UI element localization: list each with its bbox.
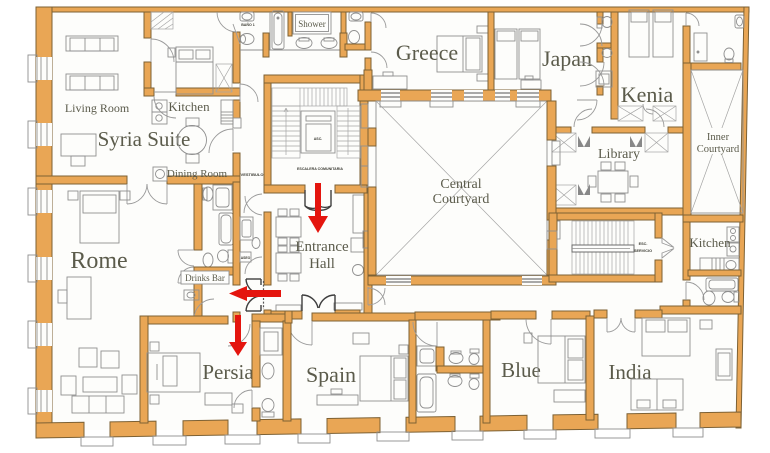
svg-text:Greece: Greece [396,40,458,65]
svg-text:ESCALERA COMUNITARIA: ESCALERA COMUNITARIA [297,167,343,171]
svg-text:Inner: Inner [707,132,730,143]
svg-text:Japan: Japan [542,46,592,71]
svg-text:Dining Room: Dining Room [167,168,228,180]
svg-text:Library: Library [598,147,640,162]
svg-text:Kitchen: Kitchen [689,235,731,250]
svg-text:ASC.: ASC. [314,137,323,141]
svg-text:Entrance: Entrance [295,239,349,255]
svg-text:Blue: Blue [501,358,541,382]
svg-text:Central: Central [440,177,481,192]
svg-text:Syria Suite: Syria Suite [98,127,191,151]
svg-text:India: India [608,360,652,384]
svg-text:BAÑO 1: BAÑO 1 [241,22,255,27]
svg-text:Hall: Hall [309,256,335,272]
svg-text:SERVICIO: SERVICIO [634,249,652,253]
svg-text:Courtyard: Courtyard [697,144,740,155]
svg-text:Shower: Shower [298,19,326,29]
svg-text:Persia: Persia [202,360,254,384]
svg-text:ASEO: ASEO [241,256,251,260]
svg-text:Living Room: Living Room [65,101,130,115]
svg-text:ESC.: ESC. [639,242,648,246]
svg-text:Spain: Spain [306,362,356,387]
svg-text:Kitchen: Kitchen [168,99,210,114]
svg-text:Drinks Bar: Drinks Bar [185,273,225,283]
svg-text:Courtyard: Courtyard [433,192,490,207]
svg-text:Kenia: Kenia [621,82,674,107]
svg-text:Rome: Rome [70,248,127,274]
svg-text:VESTIBULO: VESTIBULO [241,172,264,177]
